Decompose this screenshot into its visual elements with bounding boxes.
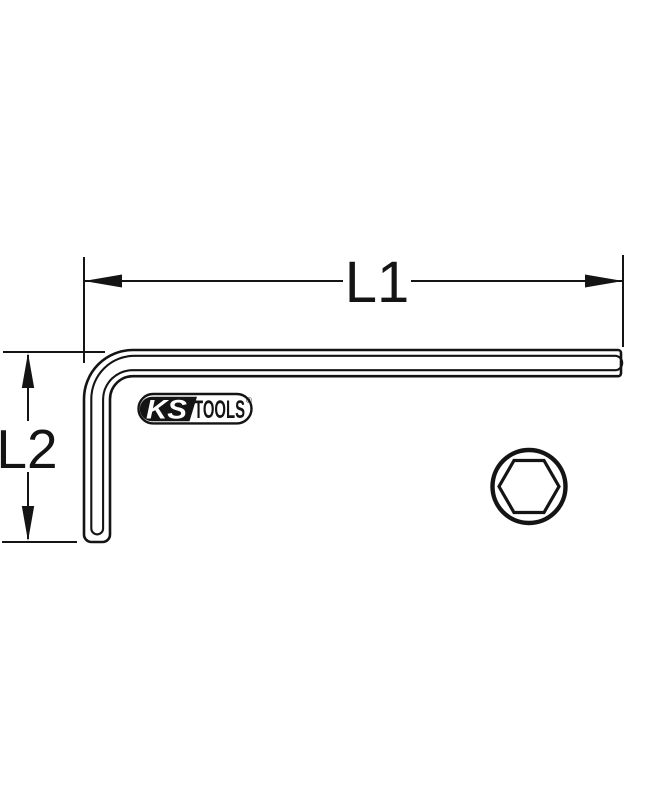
l1-arrowhead-left xyxy=(84,275,122,288)
logo-tools-text: TOOLS xyxy=(194,396,245,424)
cross-section-hexagon xyxy=(499,461,559,513)
l1-dimension: L1 xyxy=(84,250,623,363)
l2-arrowhead-down xyxy=(22,506,34,541)
l2-label: L2 xyxy=(0,418,58,480)
l1-label: L1 xyxy=(345,250,410,315)
hex-cross-section xyxy=(493,450,566,523)
l2-arrowhead-up xyxy=(22,353,34,388)
logo-registered-mark: ® xyxy=(246,396,252,405)
ks-tools-logo: KS TOOLS ® xyxy=(139,394,253,425)
diagram-canvas: L1 L2 KS TOOLS ® xyxy=(0,0,654,800)
logo-ks-text: KS xyxy=(146,395,187,425)
hex-key-diagram: L1 L2 KS TOOLS ® xyxy=(0,0,654,800)
l1-arrowhead-right xyxy=(585,275,623,288)
